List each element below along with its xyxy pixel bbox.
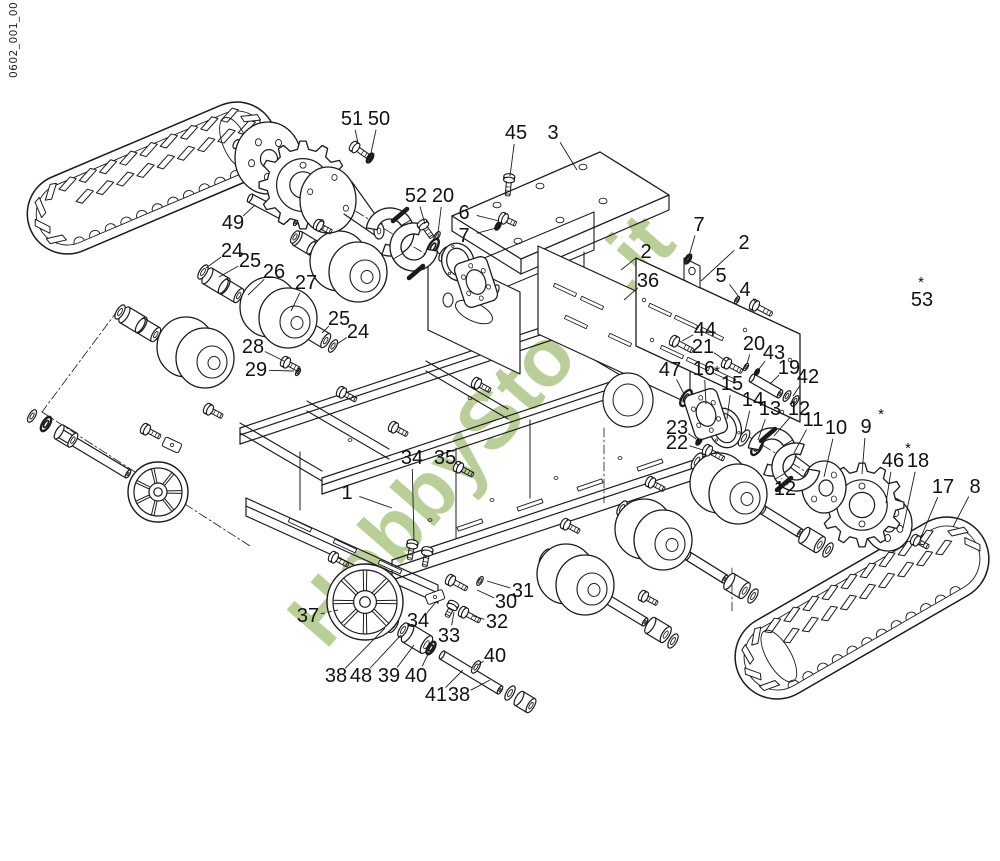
part-number: 42 bbox=[797, 366, 819, 388]
part-number: 10 bbox=[825, 417, 847, 439]
part-number: 4 bbox=[739, 279, 750, 301]
part-number: 13 bbox=[759, 398, 781, 420]
part-number: 24 bbox=[347, 321, 369, 343]
part-number: 8 bbox=[969, 476, 980, 498]
part-number: 18 bbox=[907, 450, 929, 472]
part-number: 37 bbox=[297, 605, 319, 627]
exploded-parts-diagram-page: HobbyStore.it0602_001_005150453522067492… bbox=[0, 0, 1000, 861]
part-number: 47 bbox=[659, 359, 681, 381]
callout-35: 35 bbox=[434, 447, 459, 469]
part-number: 5 bbox=[715, 265, 726, 287]
part-number: 50 bbox=[368, 108, 390, 130]
part-number: 25 bbox=[239, 250, 261, 272]
part-number: 40 bbox=[405, 665, 427, 687]
part-number: 20 bbox=[743, 333, 765, 355]
part-number: 34 bbox=[407, 610, 429, 632]
part-number: 21 bbox=[692, 336, 714, 358]
part-number: 15 bbox=[721, 373, 743, 395]
part-number: 29 bbox=[245, 359, 267, 381]
part-number: 3 bbox=[547, 122, 558, 144]
part-number: 11 bbox=[803, 409, 824, 431]
part-number: 9 bbox=[860, 416, 871, 438]
part-number: 33 bbox=[438, 625, 460, 647]
part-number: 45 bbox=[505, 122, 527, 144]
part-number: 48 bbox=[350, 665, 372, 687]
part-number: 49 bbox=[222, 212, 244, 234]
part-number: 26 bbox=[263, 261, 285, 283]
document-number: 0602_001_00 bbox=[8, 2, 20, 78]
callout-12: 12 bbox=[774, 478, 796, 500]
part-number: 7 bbox=[458, 225, 469, 247]
asterisk-marker: * bbox=[878, 406, 884, 423]
part-number: 38 bbox=[448, 684, 470, 706]
part-number: 7 bbox=[693, 214, 704, 236]
part-number: 27 bbox=[295, 272, 317, 294]
part-number: 1 bbox=[341, 482, 352, 504]
part-number: 12 bbox=[774, 478, 796, 500]
part-number: 6 bbox=[458, 202, 469, 224]
part-number: 53 bbox=[911, 289, 933, 311]
part-number: 35 bbox=[434, 447, 456, 469]
part-number: 20 bbox=[432, 185, 454, 207]
part-number: 52 bbox=[405, 185, 427, 207]
idler-wheel bbox=[128, 462, 188, 522]
exploded-parts-diagram: HobbyStore.it0602_001_005150453522067492… bbox=[0, 0, 1000, 861]
part-number: 36 bbox=[637, 270, 659, 292]
part-number: 28 bbox=[242, 336, 264, 358]
part-number: 22 bbox=[666, 432, 688, 454]
part-number: 17 bbox=[932, 476, 954, 498]
part-number: 39 bbox=[378, 665, 400, 687]
part-number: 2 bbox=[640, 241, 651, 263]
part-number: 51 bbox=[341, 108, 363, 130]
part-number: 38 bbox=[325, 665, 347, 687]
part-number: 46 bbox=[882, 450, 904, 472]
part-number: 40 bbox=[484, 645, 506, 667]
part-number: 32 bbox=[486, 611, 508, 633]
idler-wheel bbox=[327, 564, 403, 640]
doc-number: 0602_001_00 bbox=[8, 2, 20, 78]
asterisk-marker: * bbox=[918, 274, 924, 291]
part-number: 31 bbox=[512, 580, 534, 602]
asterisk-marker: * bbox=[714, 363, 720, 380]
part-number: 41 bbox=[425, 684, 447, 706]
part-number: 16 bbox=[693, 358, 715, 380]
part-number: 2 bbox=[738, 232, 749, 254]
part-number: 34 bbox=[401, 447, 423, 469]
